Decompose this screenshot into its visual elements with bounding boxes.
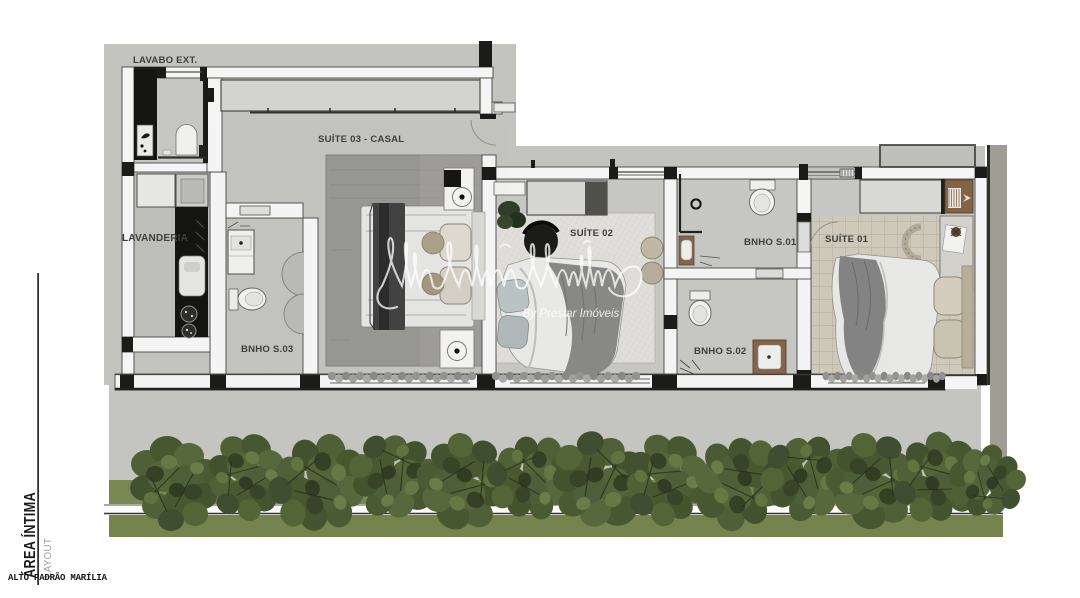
svg-text:LAVABO EXT.: LAVABO EXT. <box>133 55 197 66</box>
svg-text:ÁREA ÍNTIMA: ÁREA ÍNTIMA <box>21 492 40 578</box>
svg-text:ALTO PADRÃO MARÍLIA: ALTO PADRÃO MARÍLIA <box>8 572 108 583</box>
svg-text:SUÍTE 01: SUÍTE 01 <box>825 233 869 245</box>
svg-text:BNHO S.01: BNHO S.01 <box>744 237 797 248</box>
svg-text:SUÍTE 03 - CASAL: SUÍTE 03 - CASAL <box>318 133 404 145</box>
svg-text:LAVANDERIA: LAVANDERIA <box>122 233 188 244</box>
svg-text:By Prestar Imóveis: By Prestar Imóveis <box>523 308 620 320</box>
svg-text:SUÍTE 02: SUÍTE 02 <box>570 227 613 239</box>
svg-text:BNHO S.03: BNHO S.03 <box>241 344 293 355</box>
svg-text:LAYOUT: LAYOUT <box>43 538 54 578</box>
svg-text:BNHO S.02: BNHO S.02 <box>694 346 746 357</box>
